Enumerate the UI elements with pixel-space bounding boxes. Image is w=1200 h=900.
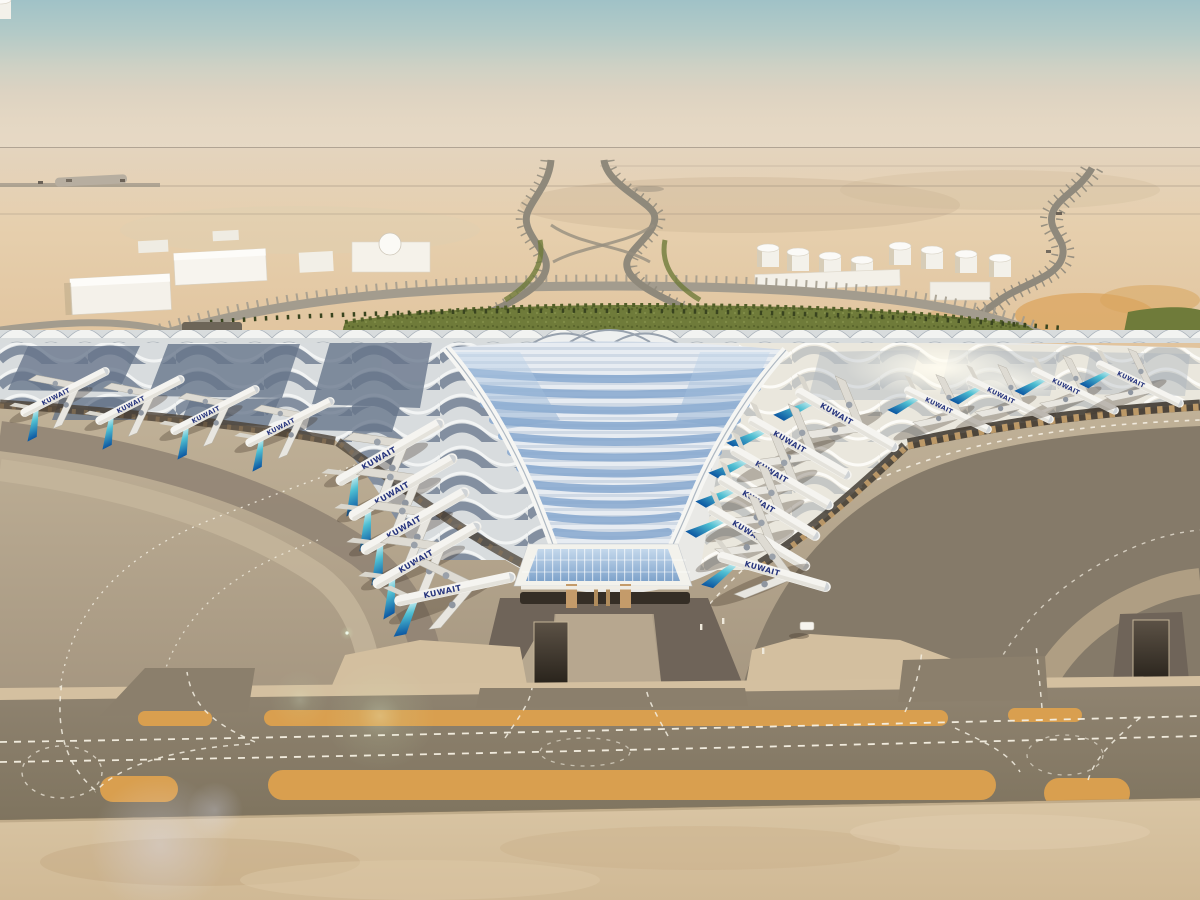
column (606, 588, 610, 606)
sky (0, 0, 1200, 150)
flare-halo (325, 661, 435, 771)
sky-gradient (0, 0, 1200, 150)
apex-entrance (514, 544, 692, 608)
van-shadow (789, 633, 809, 639)
flare-halo (270, 670, 330, 730)
desert-smudge (840, 170, 1160, 210)
flare-halo (187, 782, 243, 838)
sand-mottle (240, 860, 600, 900)
bollard (722, 618, 724, 624)
dome (379, 233, 401, 255)
curbside-shadow (520, 592, 690, 604)
sand-mottle (850, 814, 1150, 850)
white-building (930, 282, 990, 300)
taxiway-connector-right (898, 656, 1048, 702)
apex-mullions (526, 549, 680, 581)
taxiway-connector-center (476, 688, 748, 708)
canopy-edge (521, 586, 689, 590)
sand-mottle (500, 826, 900, 870)
flare-core (345, 631, 348, 634)
bollard (700, 624, 702, 630)
aerial-rendering: KUWAITKUWAITKUWAITKUWAITKUWAITKUWAITKUWA… (0, 0, 1200, 900)
underground-ramp (534, 622, 568, 692)
column (594, 588, 598, 606)
bollard (762, 648, 764, 654)
